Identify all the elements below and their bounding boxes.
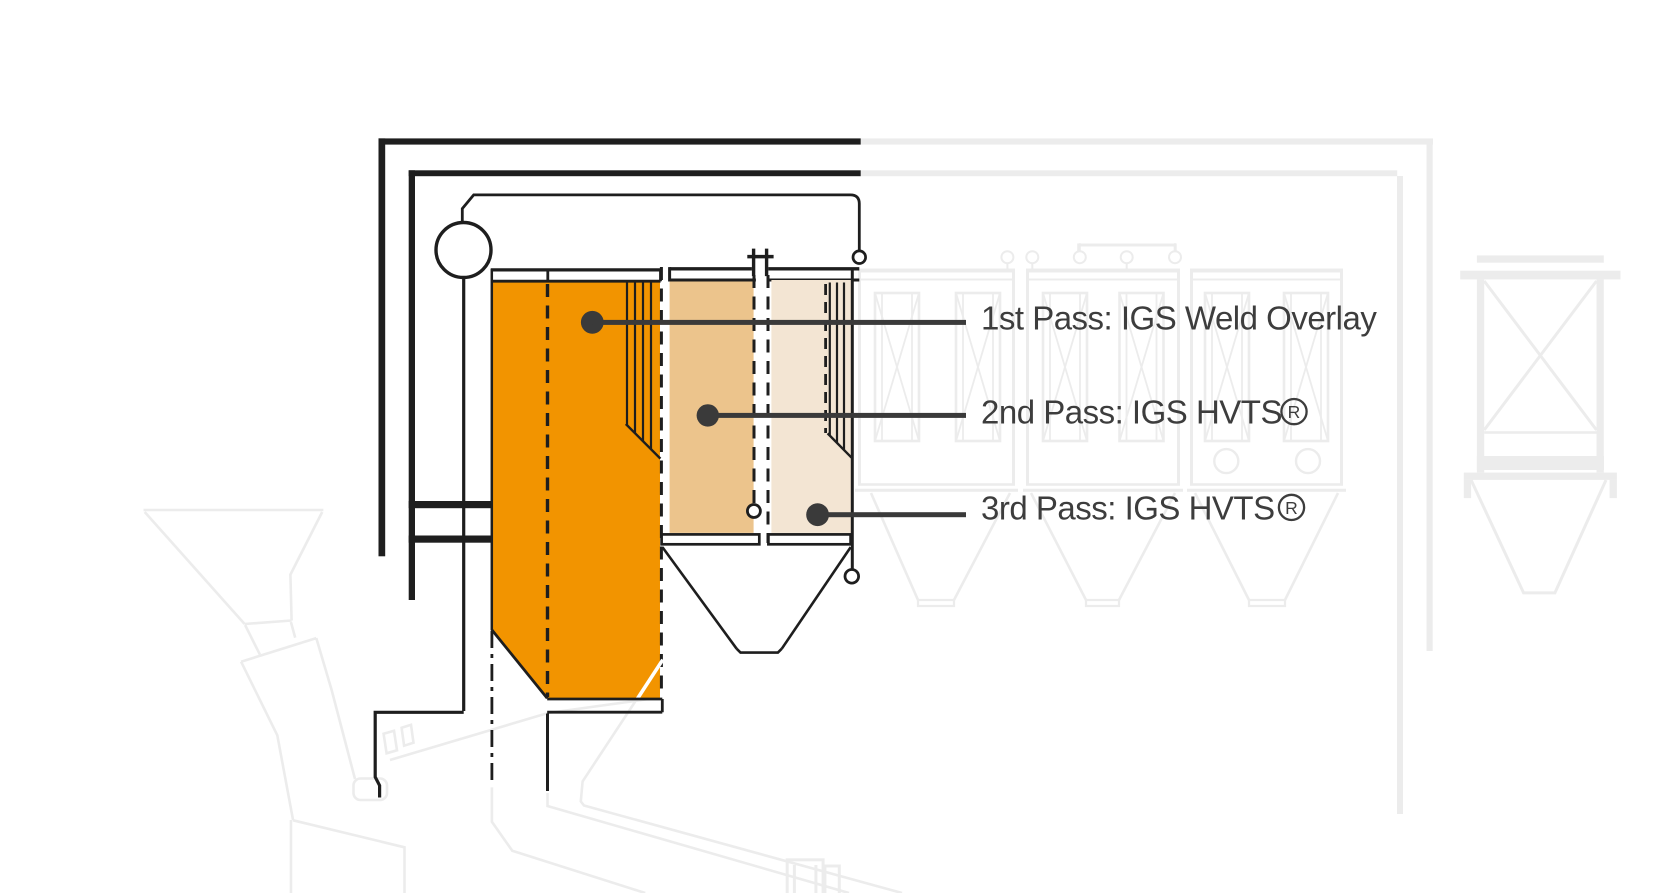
svg-text:2nd Pass: IGS HVTS: 2nd Pass: IGS HVTS [981,394,1282,431]
svg-text:3rd Pass: IGS HVTS: 3rd Pass: IGS HVTS [981,489,1275,526]
svg-text:1st Pass: IGS Weld Overlay: 1st Pass: IGS Weld Overlay [981,300,1377,337]
svg-text:R: R [1288,402,1301,422]
svg-text:R: R [1285,498,1298,518]
